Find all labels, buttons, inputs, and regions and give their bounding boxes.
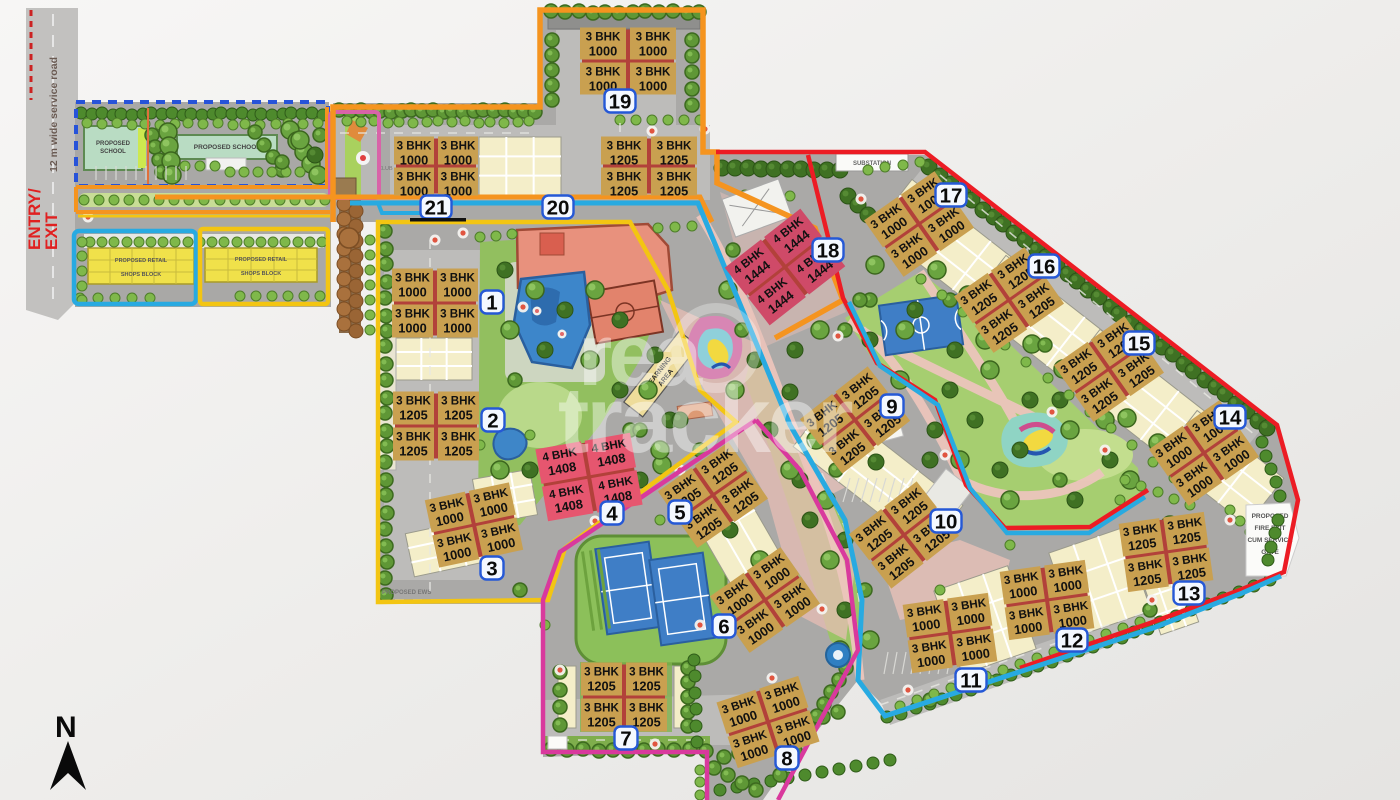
svg-text:18: 18 — [817, 240, 840, 263]
svg-text:1000: 1000 — [400, 153, 428, 168]
svg-text:13: 13 — [1178, 583, 1201, 606]
svg-text:1205: 1205 — [587, 715, 615, 730]
svg-text:3 BHK: 3 BHK — [397, 140, 432, 153]
svg-text:20: 20 — [547, 197, 570, 220]
svg-text:3 BHK: 3 BHK — [636, 31, 671, 44]
svg-text:3: 3 — [486, 558, 497, 581]
svg-text:1205: 1205 — [399, 408, 427, 423]
svg-text:1000: 1000 — [639, 79, 667, 94]
svg-text:3 BHK: 3 BHK — [607, 171, 642, 184]
svg-text:4: 4 — [606, 503, 618, 526]
svg-text:12: 12 — [1061, 630, 1084, 653]
svg-text:11: 11 — [960, 670, 982, 693]
svg-text:3 BHK: 3 BHK — [441, 140, 476, 153]
svg-text:SCHOOL: SCHOOL — [100, 149, 126, 155]
svg-text:3 BHK: 3 BHK — [629, 666, 664, 679]
svg-text:1205: 1205 — [660, 184, 688, 199]
svg-text:12 m wide service road: 12 m wide service road — [48, 57, 60, 172]
svg-text:3 BHK: 3 BHK — [396, 431, 431, 444]
svg-text:1000: 1000 — [639, 44, 667, 59]
svg-text:3 BHK: 3 BHK — [441, 431, 476, 444]
svg-text:8: 8 — [781, 748, 792, 771]
svg-text:1000: 1000 — [398, 321, 426, 336]
svg-text:1000: 1000 — [589, 44, 617, 59]
svg-text:1205: 1205 — [632, 715, 660, 730]
svg-text:PROPOSED RETAIL: PROPOSED RETAIL — [115, 258, 168, 264]
svg-text:3 BHK: 3 BHK — [395, 308, 430, 321]
svg-text:3 BHK: 3 BHK — [397, 171, 432, 184]
svg-text:3 BHK: 3 BHK — [657, 140, 692, 153]
svg-text:N: N — [55, 711, 77, 744]
svg-text:EXIT: EXIT — [42, 212, 61, 250]
svg-text:3 BHK: 3 BHK — [395, 272, 430, 285]
svg-text:21: 21 — [425, 197, 448, 220]
svg-text:2: 2 — [487, 410, 498, 433]
svg-text:17: 17 — [940, 185, 963, 208]
svg-text:PROPOSED RETAIL: PROPOSED RETAIL — [235, 257, 288, 263]
svg-text:3 BHK: 3 BHK — [440, 272, 475, 285]
svg-text:SHOPS BLOCK: SHOPS BLOCK — [121, 272, 161, 278]
svg-text:SHOPS BLOCK: SHOPS BLOCK — [241, 271, 281, 277]
svg-text:3 BHK: 3 BHK — [636, 66, 671, 79]
svg-text:14: 14 — [1219, 407, 1242, 430]
svg-text:5: 5 — [674, 502, 685, 525]
svg-text:3 BHK: 3 BHK — [657, 171, 692, 184]
svg-text:15: 15 — [1128, 333, 1151, 356]
svg-text:1205: 1205 — [660, 153, 688, 168]
svg-text:16: 16 — [1033, 256, 1056, 279]
svg-text:7: 7 — [620, 728, 631, 751]
svg-text:3 BHK: 3 BHK — [396, 395, 431, 408]
svg-text:10: 10 — [935, 511, 958, 534]
svg-text:3 BHK: 3 BHK — [586, 66, 621, 79]
svg-text:19: 19 — [609, 91, 632, 114]
svg-text:1205: 1205 — [444, 444, 472, 459]
svg-text:3 BHK: 3 BHK — [584, 702, 619, 715]
svg-text:1205: 1205 — [610, 153, 638, 168]
svg-text:1205: 1205 — [444, 408, 472, 423]
svg-text:1205: 1205 — [610, 184, 638, 199]
svg-text:PROPOSED EWS: PROPOSED EWS — [382, 590, 431, 596]
svg-text:1205: 1205 — [399, 444, 427, 459]
svg-text:9: 9 — [886, 396, 897, 419]
svg-text:3 BHK: 3 BHK — [607, 140, 642, 153]
svg-text:3 BHK: 3 BHK — [629, 702, 664, 715]
svg-text:3 BHK: 3 BHK — [441, 395, 476, 408]
svg-text:3 BHK: 3 BHK — [440, 308, 475, 321]
svg-text:1205: 1205 — [632, 679, 660, 694]
svg-text:1000: 1000 — [443, 321, 471, 336]
svg-text:6: 6 — [718, 616, 729, 639]
svg-text:1000: 1000 — [443, 285, 471, 300]
svg-text:3 BHK: 3 BHK — [584, 666, 619, 679]
svg-text:1: 1 — [486, 292, 497, 315]
svg-text:1000: 1000 — [444, 153, 472, 168]
svg-text:PROPOSED: PROPOSED — [96, 141, 131, 147]
svg-text:1000: 1000 — [398, 285, 426, 300]
svg-text:3 BHK: 3 BHK — [586, 31, 621, 44]
svg-text:1205: 1205 — [587, 679, 615, 694]
svg-text:3 BHK: 3 BHK — [441, 171, 476, 184]
svg-text:PROPOSED SCHOOL: PROPOSED SCHOOL — [194, 144, 260, 151]
